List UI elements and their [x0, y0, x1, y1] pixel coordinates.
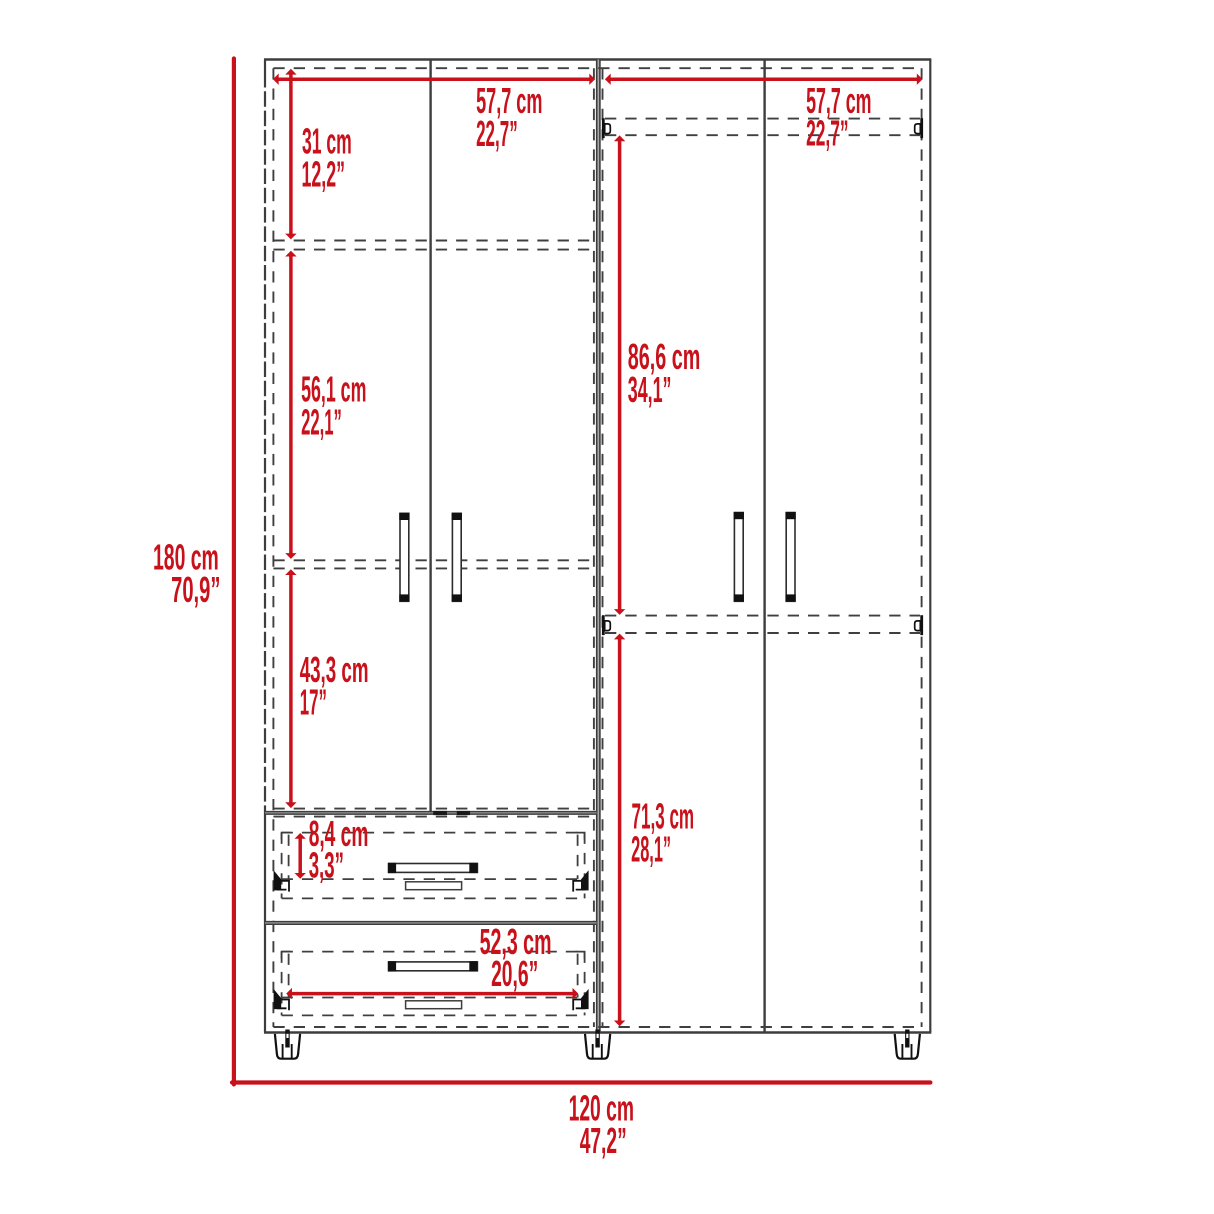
svg-text:3,3”: 3,3” — [309, 846, 344, 886]
svg-text:22,7”: 22,7” — [476, 114, 518, 154]
svg-text:12,2”: 12,2” — [302, 154, 346, 194]
svg-text:70,9”: 70,9” — [171, 570, 220, 610]
svg-text:20,6”: 20,6” — [491, 954, 538, 994]
svg-text:47,2”: 47,2” — [580, 1121, 627, 1161]
svg-text:22,1”: 22,1” — [301, 403, 342, 443]
svg-text:28,1”: 28,1” — [631, 829, 671, 869]
svg-text:22,7”: 22,7” — [806, 114, 848, 154]
svg-text:34,1”: 34,1” — [628, 370, 672, 410]
svg-text:17”: 17” — [300, 683, 327, 723]
